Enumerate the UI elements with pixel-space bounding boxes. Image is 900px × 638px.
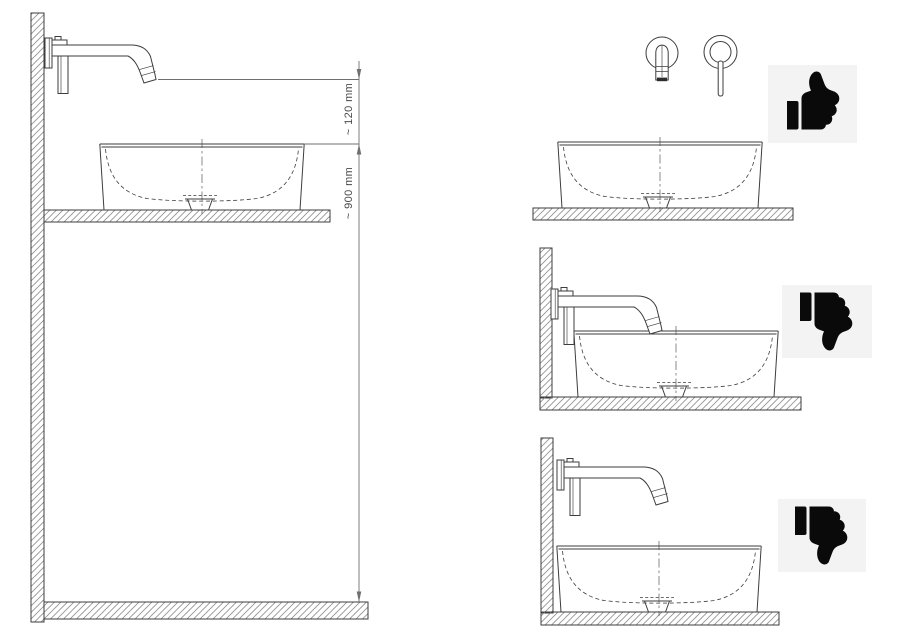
dimension-arrow	[357, 144, 362, 155]
floor-section	[44, 602, 368, 619]
wall-faucet-front-view	[646, 36, 737, 97]
handle-base-ring	[710, 42, 731, 63]
rejection-badge	[782, 285, 872, 358]
aerator-opening	[657, 78, 667, 82]
incorrect-installation-diagram-2	[541, 438, 866, 625]
dimension-annotations: ~ 120 mm ~ 900 mm	[158, 61, 361, 602]
dimension-label-mounting-height: ~ 900 mm	[343, 167, 355, 219]
countertop-section	[44, 210, 330, 222]
incorrect-installation-diagram-1	[540, 248, 872, 410]
washbasin-side-view	[557, 541, 761, 616]
wall-section	[540, 248, 552, 398]
handle-lever	[718, 61, 723, 96]
countertop-section	[533, 208, 793, 220]
approval-badge	[768, 65, 857, 143]
wall-section	[31, 13, 44, 622]
wall-faucet-side-view	[551, 288, 662, 345]
rejection-badge	[778, 499, 866, 572]
dimension-arrow	[357, 592, 362, 603]
washbasin-side-view	[574, 326, 778, 401]
dimension-arrow	[357, 69, 362, 80]
main-dimension-diagram: ~ 120 mm ~ 900 mm	[31, 13, 368, 622]
faucet-installation-diagram-sheet: ~ 120 mm ~ 900 mm	[0, 0, 900, 638]
correct-installation-diagram	[533, 36, 857, 221]
washbasin-side-view	[100, 139, 304, 214]
washbasin-front-view	[558, 137, 762, 212]
wall-faucet-side-view	[45, 37, 156, 94]
floor-section	[541, 612, 779, 625]
dimension-label-spout-height: ~ 120 mm	[343, 83, 355, 135]
wall-section	[541, 438, 553, 613]
floor-section	[540, 397, 801, 410]
wall-faucet-side-view	[557, 459, 668, 516]
diagram-canvas: ~ 120 mm ~ 900 mm	[0, 0, 900, 638]
